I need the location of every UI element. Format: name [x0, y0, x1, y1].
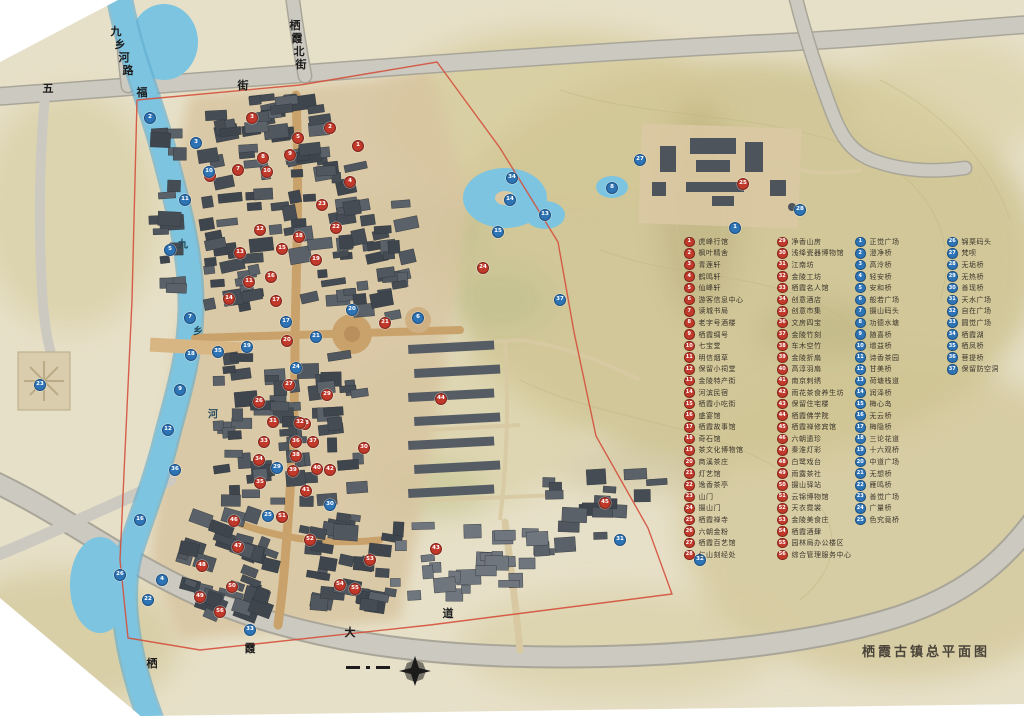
legend-number-badge: 33 [947, 318, 958, 329]
map-marker-red-43: 43 [430, 543, 442, 555]
legend-number-badge: 28 [684, 550, 695, 561]
map-marker-blue-11: 11 [179, 194, 191, 206]
legend-item: 26六朝金粉 [684, 526, 744, 538]
legend-number-badge: 4 [684, 271, 695, 282]
legend-number-badge: 37 [777, 329, 788, 340]
map-marker-red-27: 27 [283, 379, 295, 391]
road-label-char: 大 [345, 624, 356, 640]
legend-item: 28仁山刻经处 [684, 549, 744, 561]
map-marker-blue-33: 33 [244, 624, 256, 636]
map-marker-blue-37: 37 [554, 294, 566, 306]
legend-item-label: 仁山刻经处 [699, 550, 737, 560]
legend-item-label: 保留小祠堂 [699, 364, 737, 374]
legend-number-badge: 56 [777, 550, 788, 561]
legend-item-label: 梅隐桥 [870, 422, 893, 432]
map-marker-red-22: 22 [330, 222, 342, 234]
legend-item: 1虎峰行馆 [684, 236, 744, 248]
legend-item-label: 般若广场 [870, 295, 900, 305]
legend-item-label: 逸香茶亭 [699, 480, 729, 490]
legend-item: 43保留住宅楼 [777, 398, 852, 410]
map-marker-red-20: 20 [281, 335, 293, 347]
legend-item-label: 雨露茶社 [792, 469, 822, 479]
legend-number-badge: 20 [684, 457, 695, 468]
legend-item-label: 虎峰行馆 [699, 237, 729, 247]
legend-column-3: 1正觉广场2澄净桥3高泠桥4轻安桥5安和桥6般若广场7摄山码头8功德水塘9随喜桥… [855, 236, 900, 526]
legend-item-label: 十六观桥 [870, 445, 900, 455]
legend-item-label: 仙峰轩 [699, 283, 722, 293]
legend-number-badge: 52 [777, 503, 788, 514]
legend-item: 42雨花茶食养生坊 [777, 387, 852, 399]
map-marker-blue-15: 15 [492, 226, 504, 238]
map-marker-red-15: 15 [276, 243, 288, 255]
map-marker-blue-1: 1 [729, 222, 741, 234]
map-marker-red-30: 30 [358, 442, 370, 454]
map-marker-red-38: 38 [290, 450, 302, 462]
legend-item-label: 摄山门 [699, 503, 722, 513]
legend-item-label: 云锦博物馆 [792, 492, 830, 502]
map-marker-red-10: 10 [261, 166, 273, 178]
legend-item-label: 金陵特产街 [699, 376, 737, 386]
legend-item: 3青莲轩 [684, 259, 744, 271]
legend-item: 27栖霞百艺馆 [684, 537, 744, 549]
legend-item: 44栖霞佛学院 [777, 410, 852, 422]
map-marker-blue-30: 30 [324, 499, 336, 511]
legend-number-badge: 39 [777, 352, 788, 363]
legend-item-label: 广量桥 [870, 503, 893, 513]
legend-item: 32金陵工坊 [777, 271, 852, 283]
legend-item-label: 栖霞湖 [962, 330, 985, 340]
legend-number-badge: 44 [777, 410, 788, 421]
legend-number-badge: 48 [777, 457, 788, 468]
legend-item-label: 车木空竹 [792, 341, 822, 351]
map-marker-red-13: 13 [234, 247, 246, 259]
scale-bar [346, 666, 390, 669]
legend-item-label: 盛宴馆 [699, 411, 722, 421]
legend-item-label: 六朝遗珍 [792, 434, 822, 444]
map-marker-red-5: 5 [292, 132, 304, 144]
legend-number-badge: 16 [855, 410, 866, 421]
legend-item: 40高淳羽扇 [777, 364, 852, 376]
legend-number-badge: 25 [855, 515, 866, 526]
legend-number-badge: 9 [684, 329, 695, 340]
legend-number-badge: 38 [777, 341, 788, 352]
legend-item-label: 文房四宝 [792, 318, 822, 328]
legend-item: 20中道广场 [855, 456, 900, 468]
legend-item: 34创意酒店 [777, 294, 852, 306]
legend-item-label: 随喜桥 [870, 330, 893, 340]
map-title: 栖霞古镇总平面图 [862, 641, 990, 660]
legend-item-label: 六朝金粉 [699, 527, 729, 537]
legend-item-label: 栖霞禅修宾馆 [792, 422, 837, 432]
legend-item: 35创意市集 [777, 306, 852, 318]
legend-item: 12甘美桥 [855, 364, 900, 376]
legend-item-label: 老字号酒楼 [699, 318, 737, 328]
legend-item-label: 明信烟草 [699, 353, 729, 363]
legend-number-badge: 22 [855, 480, 866, 491]
map-marker-red-44: 44 [435, 393, 447, 405]
legend-item-label: 江南坊 [792, 260, 815, 270]
legend-item-label: 善觉广场 [870, 492, 900, 502]
legend-item-label: 善现桥 [962, 283, 985, 293]
map-marker-red-53: 53 [364, 554, 376, 566]
legend-number-badge: 8 [855, 318, 866, 329]
legend-number-badge: 12 [855, 364, 866, 375]
map-marker-blue-26: 26 [114, 569, 126, 581]
legend-item-label: 澄净桥 [870, 248, 893, 258]
map-marker-blue-13: 13 [539, 209, 551, 221]
legend-item: 3高泠桥 [855, 259, 900, 271]
road-label-char: 路 [123, 62, 134, 78]
river-label-char: 乡 [193, 323, 203, 338]
legend-item: 39金陵折扇 [777, 352, 852, 364]
legend-number-badge: 6 [684, 295, 695, 306]
legend-item: 7读城书局 [684, 306, 744, 318]
legend-item-label: 雨花茶食养生坊 [792, 388, 845, 398]
map-marker-red-26: 26 [253, 396, 265, 408]
legend-item: 2枫叶精舍 [684, 248, 744, 260]
legend-item-label: 秦淮灯彩 [792, 445, 822, 455]
legend-number-badge: 27 [947, 248, 958, 259]
legend-item-label: 荷塘栈道 [870, 376, 900, 386]
map-marker-blue-21: 21 [310, 331, 322, 343]
map-marker-red-9: 9 [284, 149, 296, 161]
road-label-char: 栖 [147, 655, 158, 671]
map-marker-blue-27: 27 [634, 154, 646, 166]
map-marker-blue-2: 2 [144, 112, 156, 124]
legend-number-badge: 28 [947, 260, 958, 271]
legend-item-label: 梵呗 [962, 248, 977, 258]
legend-number-badge: 24 [855, 503, 866, 514]
legend-number-badge: 17 [684, 422, 695, 433]
legend-item: 2澄净桥 [855, 248, 900, 260]
map-marker-blue-20: 20 [346, 304, 358, 316]
map-marker-red-52: 52 [304, 534, 316, 546]
legend-item: 15栖霞小吃街 [684, 398, 744, 410]
legend-number-badge: 23 [855, 492, 866, 503]
map-marker-blue-19: 19 [241, 341, 253, 353]
legend-number-badge: 50 [777, 480, 788, 491]
legend-item-label: 梅心岛 [870, 399, 893, 409]
map-marker-red-7: 7 [232, 164, 244, 176]
legend-number-badge: 20 [855, 457, 866, 468]
legend-item-label: 天水广场 [962, 295, 992, 305]
legend-item: 13金陵特产街 [684, 375, 744, 387]
legend-item: 14润泽桥 [855, 387, 900, 399]
legend-number-badge: 9 [855, 329, 866, 340]
legend-item: 33圆觉广场 [947, 317, 999, 329]
legend-item: 11诗香茶园 [855, 352, 900, 364]
map-marker-blue-24: 24 [290, 362, 302, 374]
legend-item: 28无垢桥 [947, 259, 999, 271]
legend-item-label: 河滨民宿 [699, 388, 729, 398]
legend-item-label: 净香山房 [792, 237, 822, 247]
legend-number-badge: 19 [684, 445, 695, 456]
legend-number-badge: 7 [855, 306, 866, 317]
legend-item-label: 圆觉广场 [962, 318, 992, 328]
legend-number-badge: 51 [777, 492, 788, 503]
legend-item-label: 栖霞佛学院 [792, 411, 830, 421]
legend-item: 27梵呗 [947, 248, 999, 260]
legend-item-label: 金陵折扇 [792, 353, 822, 363]
map-marker-red-40: 40 [311, 463, 323, 475]
legend-item-label: 正觉广场 [870, 237, 900, 247]
map-marker-red-49: 49 [194, 591, 206, 603]
legend-number-badge: 33 [777, 283, 788, 294]
legend-item-label: 雁鸣桥 [870, 480, 893, 490]
map-marker-blue-29: 29 [271, 462, 283, 474]
legend-number-badge: 1 [855, 237, 866, 248]
legend-item: 5仙峰轩 [684, 282, 744, 294]
legend-item-label: 金陵工坊 [792, 272, 822, 282]
legend-item: 10七宝堂 [684, 340, 744, 352]
legend-item: 16无云桥 [855, 410, 900, 422]
legend-item: 30善现桥 [947, 282, 999, 294]
legend-number-badge: 29 [947, 271, 958, 282]
legend-number-badge: 18 [855, 434, 866, 445]
legend-item-label: 枫叶精舍 [699, 248, 729, 258]
legend-item-label: 无想桥 [870, 469, 893, 479]
map-marker-blue-22: 22 [142, 594, 154, 606]
legend-number-badge: 29 [777, 237, 788, 248]
legend-item: 22逸香茶亭 [684, 479, 744, 491]
legend-item: 48白鹭戏台 [777, 456, 852, 468]
legend-item-label: 奇石馆 [699, 434, 722, 444]
legend-item: 26锦栗码头 [947, 236, 999, 248]
legend-item-label: 茶文化博物馆 [699, 445, 744, 455]
legend-item: 50摄山驿站 [777, 479, 852, 491]
legend-number-badge: 43 [777, 399, 788, 410]
road-label-char: 霞 [245, 640, 256, 656]
legend-number-badge: 11 [855, 352, 866, 363]
legend-number-badge: 8 [684, 318, 695, 329]
map-marker-blue-8: 8 [606, 182, 618, 194]
legend-number-badge: 36 [777, 318, 788, 329]
legend-number-badge: 14 [684, 387, 695, 398]
legend-number-badge: 2 [684, 248, 695, 259]
central-plaza-core [344, 326, 360, 342]
legend-number-badge: 49 [777, 468, 788, 479]
legend-item-label: 保留住宅楼 [792, 399, 830, 409]
legend-item: 51云锦博物馆 [777, 491, 852, 503]
legend-number-badge: 55 [777, 538, 788, 549]
legend-item: 17栖霞故事馆 [684, 422, 744, 434]
legend-number-badge: 34 [777, 295, 788, 306]
map-marker-red-45: 45 [599, 497, 611, 509]
legend-item-label: 栖霞故事馆 [699, 422, 737, 432]
legend-number-badge: 15 [684, 399, 695, 410]
legend-item-label: 三论花道 [870, 434, 900, 444]
legend-item-label: 浅绛瓷器博物馆 [792, 248, 845, 258]
legend-item: 21无想桥 [855, 468, 900, 480]
map-marker-red-34: 34 [253, 454, 265, 466]
legend-item-label: 金陵美食庄 [792, 515, 830, 525]
map-marker-red-3: 3 [246, 112, 258, 124]
legend-number-badge: 24 [684, 503, 695, 514]
legend-item: 4鹤鸣轩 [684, 271, 744, 283]
map-marker-blue-25: 25 [262, 510, 274, 522]
legend-item: 18三论花道 [855, 433, 900, 445]
legend-number-badge: 47 [777, 445, 788, 456]
map-marker-red-2: 2 [324, 122, 336, 134]
river-label-char: 九 [178, 236, 188, 251]
map-marker-blue-4: 4 [156, 574, 168, 586]
legend-item: 6游客信息中心 [684, 294, 744, 306]
legend-number-badge: 31 [777, 260, 788, 271]
legend-column-1: 1虎峰行馆2枫叶精舍3青莲轩4鹤鸣轩5仙峰轩6游客信息中心7读城书局8老字号酒楼… [684, 236, 744, 561]
legend-item-label: 商溪茶庄 [699, 457, 729, 467]
legend-number-badge: 41 [777, 376, 788, 387]
legend-number-badge: 13 [855, 376, 866, 387]
legend-item-label: 功德水塘 [870, 318, 900, 328]
legend-item-label: 游客信息中心 [699, 295, 744, 305]
legend-number-badge: 26 [947, 237, 958, 248]
legend-item: 7摄山码头 [855, 306, 900, 318]
legend-number-badge: 21 [855, 468, 866, 479]
legend-item: 54栖霞酒肆 [777, 526, 852, 538]
legend-item: 8老字号酒楼 [684, 317, 744, 329]
legend-item: 25色究竟桥 [855, 514, 900, 526]
legend-number-badge: 10 [855, 341, 866, 352]
legend-item: 23善觉广场 [855, 491, 900, 503]
legend-item: 24摄山门 [684, 503, 744, 515]
legend-item-label: 中道广场 [870, 457, 900, 467]
legend-item: 15梅心岛 [855, 398, 900, 410]
map-marker-red-39: 39 [287, 465, 299, 477]
legend-item-label: 栖霞禅寺 [699, 515, 729, 525]
map-marker-red-12: 12 [254, 224, 266, 236]
map-marker-red-24: 24 [477, 262, 489, 274]
map-marker-blue-3: 3 [190, 137, 202, 149]
legend-item: 36文房四宝 [777, 317, 852, 329]
legend-number-badge: 17 [855, 422, 866, 433]
legend-item: 53金陵美食庄 [777, 514, 852, 526]
legend-item-label: 栖霞百艺馆 [699, 538, 737, 548]
map-marker-blue-18: 18 [185, 349, 197, 361]
road-label-char: 道 [443, 605, 454, 621]
legend-column-2: 29净香山房30浅绛瓷器博物馆31江南坊32金陵工坊33栖霞名人馆34创意酒店3… [777, 236, 852, 561]
legend-number-badge: 4 [855, 271, 866, 282]
legend-item-label: 综合管理服务中心 [792, 550, 852, 560]
legend-item-label: 安和桥 [870, 283, 893, 293]
legend-item-label: 栖霞名人馆 [792, 283, 830, 293]
legend-item-label: 栖凤桥 [962, 341, 985, 351]
legend-item-label: 高泠桥 [870, 260, 893, 270]
legend-item-label: 锦栗码头 [962, 237, 992, 247]
legend-item: 20商溪茶庄 [684, 456, 744, 468]
legend-number-badge: 42 [777, 387, 788, 398]
map-marker-red-11: 11 [243, 276, 255, 288]
legend-item-label: 增益桥 [870, 341, 893, 351]
legend-item: 38车木空竹 [777, 340, 852, 352]
legend-item: 49雨露茶社 [777, 468, 852, 480]
legend-number-badge: 7 [684, 306, 695, 317]
legend-number-badge: 34 [947, 329, 958, 340]
map-marker-red-4: 4 [344, 176, 356, 188]
legend-number-badge: 10 [684, 341, 695, 352]
legend-number-badge: 1 [684, 237, 695, 248]
legend-item: 5安和桥 [855, 282, 900, 294]
map-marker-red-41: 41 [300, 485, 312, 497]
map-marker-red-18: 18 [293, 231, 305, 243]
legend-number-badge: 46 [777, 434, 788, 445]
map-marker-red-19: 19 [310, 254, 322, 266]
map-marker-red-46: 46 [228, 515, 240, 527]
map-marker-red-14: 14 [223, 293, 235, 305]
legend-item-label: 色究竟桥 [870, 515, 900, 525]
legend-item-label: 菩提桥 [962, 353, 985, 363]
legend-number-badge: 37 [947, 364, 958, 375]
legend-item: 21灯艺馆 [684, 468, 744, 480]
legend-item: 41南京刺绣 [777, 375, 852, 387]
legend-item: 18奇石馆 [684, 433, 744, 445]
legend-number-badge: 5 [684, 283, 695, 294]
legend-item-label: 园林局办公楼区 [792, 538, 845, 548]
legend-item-label: 栖霞酒肆 [792, 527, 822, 537]
map-marker-red-23: 23 [316, 199, 328, 211]
road-label-char: 福 [137, 84, 148, 100]
legend-item-label: 摄山码头 [870, 306, 900, 316]
map-marker-red-29: 29 [321, 389, 333, 401]
legend-number-badge: 3 [684, 260, 695, 271]
legend-number-badge: 31 [947, 295, 958, 306]
legend-item-label: 南京刺绣 [792, 376, 822, 386]
map-marker-blue-28: 28 [794, 204, 806, 216]
legend-item-label: 青莲轩 [699, 260, 722, 270]
map-marker-blue-5: 5 [164, 244, 176, 256]
map-marker-blue-36: 36 [169, 464, 181, 476]
legend-item: 22雁鸣桥 [855, 479, 900, 491]
map-marker-red-55: 55 [349, 583, 361, 595]
legend-number-badge: 14 [855, 387, 866, 398]
map-marker-blue-23: 23 [34, 379, 46, 391]
legend-number-badge: 35 [777, 306, 788, 317]
legend-number-badge: 11 [684, 352, 695, 363]
map-marker-red-51: 51 [276, 511, 288, 523]
legend-item-label: 创意市集 [792, 306, 822, 316]
map-marker-blue-35: 35 [212, 346, 224, 358]
legend-number-badge: 13 [684, 376, 695, 387]
legend-item-label: 读城书局 [699, 306, 729, 316]
scanned-master-plan-page: { "title": "栖霞古镇总平面图", "colors": { "pape… [0, 0, 1024, 724]
map-marker-red-33: 33 [258, 436, 270, 448]
legend-item: 6般若广场 [855, 294, 900, 306]
legend-item-label: 无热桥 [962, 272, 985, 282]
legend-item: 47秦淮灯彩 [777, 445, 852, 457]
map-marker-red-1: 1 [352, 140, 364, 152]
legend-item: 29净香山房 [777, 236, 852, 248]
legend-number-badge: 54 [777, 526, 788, 537]
legend-item: 14河滨民宿 [684, 387, 744, 399]
legend-item: 19十六观桥 [855, 445, 900, 457]
legend-item-label: 山门 [699, 492, 714, 502]
legend-number-badge: 27 [684, 538, 695, 549]
legend-item: 11明信烟草 [684, 352, 744, 364]
legend-number-badge: 23 [684, 492, 695, 503]
map-marker-red-56: 56 [214, 606, 226, 618]
map-marker-blue-7: 7 [184, 312, 196, 324]
legend-number-badge: 45 [777, 422, 788, 433]
legend-item: 32自在广场 [947, 306, 999, 318]
legend-item-label: 鹤鸣轩 [699, 272, 722, 282]
legend-number-badge: 30 [777, 248, 788, 259]
legend-item-label: 天衣霓裳 [792, 503, 822, 513]
legend-item: 9随喜桥 [855, 329, 900, 341]
legend-number-badge: 21 [684, 468, 695, 479]
legend-item: 4轻安桥 [855, 271, 900, 283]
legend-item-label: 灯艺馆 [699, 469, 722, 479]
legend-item: 12保留小祠堂 [684, 364, 744, 376]
legend-column-4: 26锦栗码头27梵呗28无垢桥29无热桥30善现桥31天水广场32自在广场33圆… [947, 236, 999, 375]
